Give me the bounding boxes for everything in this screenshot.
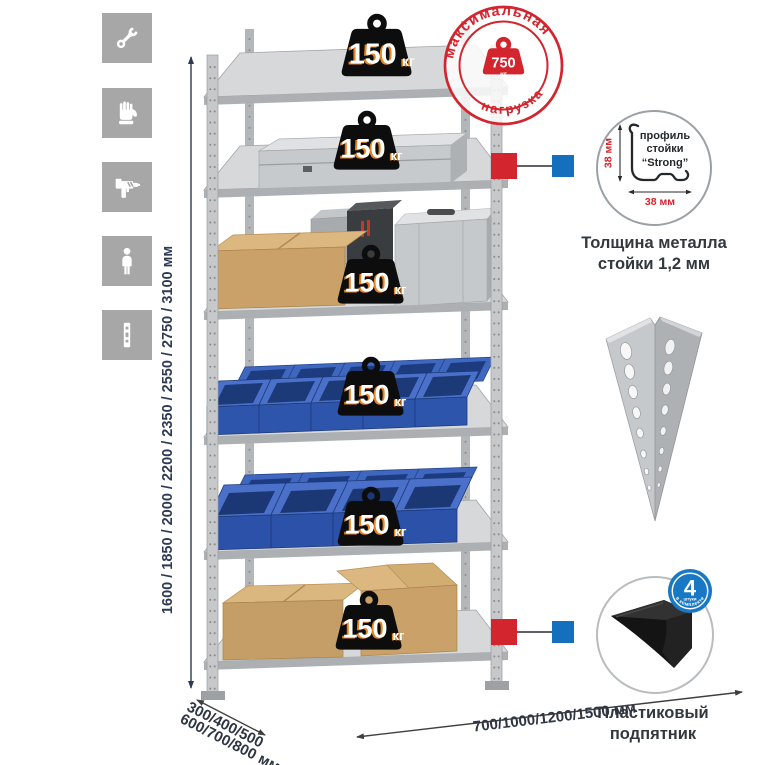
shelf-load-weight: 150 150 кг кг [321, 590, 417, 656]
rack-post-icon [111, 319, 143, 351]
svg-text:150: 150 [344, 380, 389, 410]
shelf-load-weight: 150 150 кг кг [323, 244, 419, 310]
callout-line-bottom [517, 631, 552, 633]
drill-icon-tile [102, 162, 152, 212]
height-dimension: 1600 / 1850 / 2000 / 2200 / 2350 / 2550 … [150, 40, 200, 700]
callout-marker-blue-bottom [552, 621, 574, 643]
shelf-load-weight: 150 150 кг кг [323, 486, 419, 552]
callout-marker-red-top [491, 153, 517, 179]
stamp-unit: кг [500, 69, 507, 78]
profile-dim-horizontal-label: 38 мм [645, 196, 675, 208]
person-height-icon [111, 245, 143, 277]
drill-icon [111, 171, 143, 203]
weight-unit: кг [402, 54, 415, 69]
height-dimension-label: 1600 / 1850 / 2000 / 2200 / 2350 / 2550 … [160, 246, 176, 614]
svg-text:кг: кг [391, 148, 404, 163]
svg-text:кг: кг [395, 524, 408, 539]
wrench-icon [111, 22, 143, 54]
shelf-load-weight: 150 150 кг кг [319, 110, 415, 176]
quantity-badge: 4 штуки в комплекте [667, 568, 713, 614]
profile-dim-horizontal [628, 190, 692, 194]
svg-text:150: 150 [342, 614, 387, 644]
profile-text-line2: стойки [646, 143, 683, 155]
profile-caption: Толщина металла стойки 1,2 мм [574, 233, 734, 275]
product-infographic: 1600 / 1850 / 2000 / 2200 / 2350 / 2550 … [0, 0, 765, 765]
profile-dim-vertical [618, 124, 622, 182]
callout-marker-blue-top [552, 155, 574, 177]
callout-marker-red-bottom [491, 619, 517, 645]
base-dimensions: 300/400/500 600/700/800 мм 700/1000/1200… [140, 670, 765, 765]
profile-caption-line2: стойки 1,2 мм [574, 254, 734, 275]
profile-dim-vertical-label: 38 мм [603, 138, 615, 168]
callout-line-top [517, 165, 552, 167]
profile-caption-line1: Толщина металла [574, 233, 734, 254]
badge-sub-label: штуки [684, 597, 697, 602]
weight-value: 150 [349, 38, 397, 70]
wrench-icon-tile [102, 13, 152, 63]
svg-text:150: 150 [344, 510, 389, 540]
svg-text:кг: кг [395, 282, 408, 297]
profile-text-line3: “Strong” [642, 157, 688, 169]
gloves-icon-tile [102, 88, 152, 138]
svg-text:150: 150 [340, 134, 385, 164]
rack-post-front-left [201, 55, 225, 700]
profile-cross-section: 38 мм 38 мм профиль стойки “Strong” [604, 118, 700, 218]
shelf-load-weight: 150 150 кг кг [326, 13, 428, 83]
svg-text:150: 150 [344, 268, 389, 298]
profile-text-line1: профиль [640, 130, 690, 142]
max-load-stamp: максимальная нагрузка 750 кг [440, 2, 567, 129]
svg-text:кг: кг [395, 394, 408, 409]
gloves-icon [111, 97, 143, 129]
shelf-load-weight: 150 150 кг кг [323, 356, 419, 422]
angle-post-illustration [598, 303, 710, 531]
width-dimension-label: 700/1000/1200/1500 мм [472, 700, 637, 736]
post-icon-tile [102, 310, 152, 360]
svg-text:кг: кг [393, 628, 406, 643]
person-icon-tile [102, 236, 152, 286]
